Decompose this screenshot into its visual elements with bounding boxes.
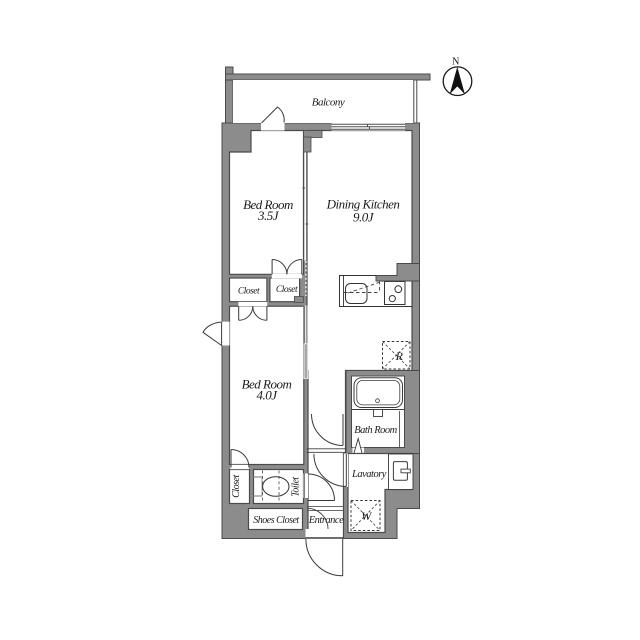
svg-text:Lavatory: Lavatory [351, 469, 387, 480]
svg-text:Balcony: Balcony [312, 97, 345, 109]
svg-text:Closet: Closet [276, 285, 298, 295]
svg-text:Closet: Closet [238, 287, 260, 297]
svg-text:N: N [452, 57, 459, 68]
svg-text:W: W [361, 509, 372, 523]
svg-text:4.0J: 4.0J [256, 388, 278, 403]
svg-text:Closet: Closet [231, 475, 242, 498]
svg-text:Toilet: Toilet [291, 477, 302, 497]
svg-text:9.0J: 9.0J [353, 210, 375, 225]
svg-text:Bath Room: Bath Room [354, 425, 397, 436]
svg-text:Shoes Closet: Shoes Closet [253, 515, 299, 526]
svg-text:3.5J: 3.5J [257, 208, 280, 223]
svg-text:R: R [395, 349, 404, 363]
